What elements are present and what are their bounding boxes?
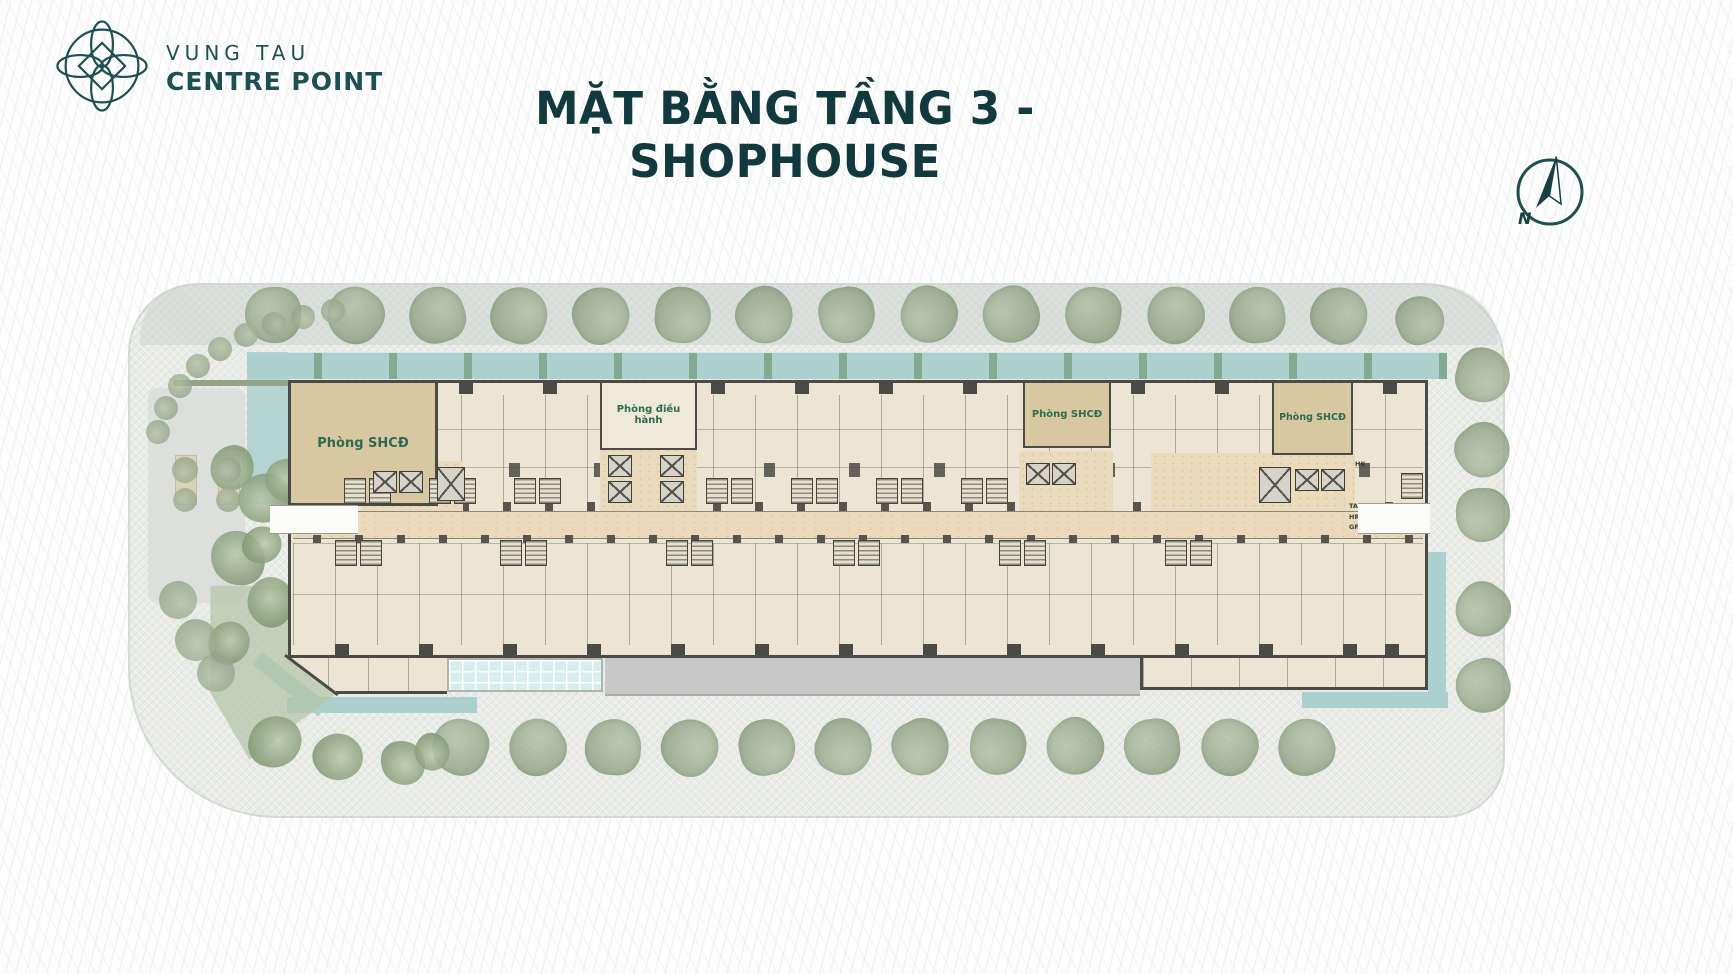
stair-icon bbox=[901, 478, 923, 504]
elevator-icon bbox=[1295, 469, 1319, 491]
water-feature-bottom-right bbox=[1302, 692, 1448, 708]
elevator-icon bbox=[1321, 469, 1345, 491]
water-feature-top bbox=[247, 352, 1447, 379]
elevator-icon bbox=[1026, 463, 1050, 485]
room-label: Phòng điều hành bbox=[602, 404, 695, 426]
elevator-icon bbox=[660, 455, 684, 477]
room-shcd-mid: Phòng SHCĐ bbox=[1023, 380, 1111, 448]
canopy bbox=[605, 658, 1140, 696]
stair-icon bbox=[514, 478, 536, 504]
elevator-icon bbox=[608, 455, 632, 477]
structural-piers-top bbox=[291, 383, 1425, 394]
entrance-east bbox=[1358, 503, 1430, 534]
compass-north-label: N bbox=[1518, 209, 1532, 228]
brand-logo: VUNG TAU CENTRE POINT bbox=[52, 14, 383, 122]
stair-icon bbox=[731, 478, 753, 504]
brand-line2: CENTRE POINT bbox=[166, 67, 383, 96]
stair-icon bbox=[1401, 473, 1423, 499]
stair-icon bbox=[525, 540, 547, 566]
stair-icon bbox=[816, 478, 838, 504]
shaft-icon bbox=[437, 467, 465, 501]
stair-icon bbox=[335, 540, 357, 566]
room-dieu-hanh: Phòng điều hành bbox=[600, 380, 697, 450]
building: Phòng SHCĐ Phòng điều hành Phòng SHCĐ Ph… bbox=[288, 380, 1428, 658]
stair-icon bbox=[360, 540, 382, 566]
room-shcd-right: Phòng SHCĐ bbox=[1272, 380, 1353, 455]
service-label-hk: HK bbox=[1355, 461, 1365, 468]
extension-bottom-wall bbox=[336, 691, 447, 694]
stair-icon bbox=[1165, 540, 1187, 566]
water-feature-right bbox=[1428, 552, 1446, 704]
elevator-icon bbox=[660, 481, 684, 503]
stair-icon bbox=[876, 478, 898, 504]
shaft-icon bbox=[1259, 467, 1291, 503]
structural-piers-bottom bbox=[291, 644, 1425, 655]
room-label: Phòng SHCĐ bbox=[1279, 412, 1346, 423]
building-right-extension bbox=[1140, 658, 1428, 690]
elevator-icon bbox=[1052, 463, 1076, 485]
elevator-icon bbox=[373, 471, 397, 493]
stair-icon bbox=[344, 478, 366, 504]
page-title: MẶT BẰNG TẦNG 3 - SHOPHOUSE bbox=[431, 82, 1139, 188]
brand-line1: VUNG TAU bbox=[166, 41, 383, 65]
stair-icon bbox=[706, 478, 728, 504]
room-label: Phòng SHCĐ bbox=[317, 436, 408, 451]
compass-icon: N bbox=[1512, 152, 1588, 228]
stair-icon bbox=[961, 478, 983, 504]
stair-icon bbox=[833, 540, 855, 566]
stair-icon bbox=[1190, 540, 1212, 566]
stair-icon bbox=[500, 540, 522, 566]
stair-icon bbox=[986, 478, 1008, 504]
skylight-grid bbox=[447, 658, 603, 692]
stair-icon bbox=[1024, 540, 1046, 566]
brand-name: VUNG TAU CENTRE POINT bbox=[166, 41, 383, 96]
stair-icon bbox=[858, 540, 880, 566]
stair-icon bbox=[791, 478, 813, 504]
stair-icon bbox=[666, 540, 688, 566]
stair-icon bbox=[999, 540, 1021, 566]
page-background: VUNG TAU CENTRE POINT MẶT BẰNG TẦNG 3 - … bbox=[0, 0, 1733, 974]
elevator-icon bbox=[399, 471, 423, 493]
room-label: Phòng SHCĐ bbox=[1032, 409, 1102, 420]
logo-knot-icon bbox=[52, 14, 152, 122]
entrance-west bbox=[270, 505, 358, 534]
elevator-icon bbox=[608, 481, 632, 503]
stair-icon bbox=[691, 540, 713, 566]
stair-icon bbox=[539, 478, 561, 504]
